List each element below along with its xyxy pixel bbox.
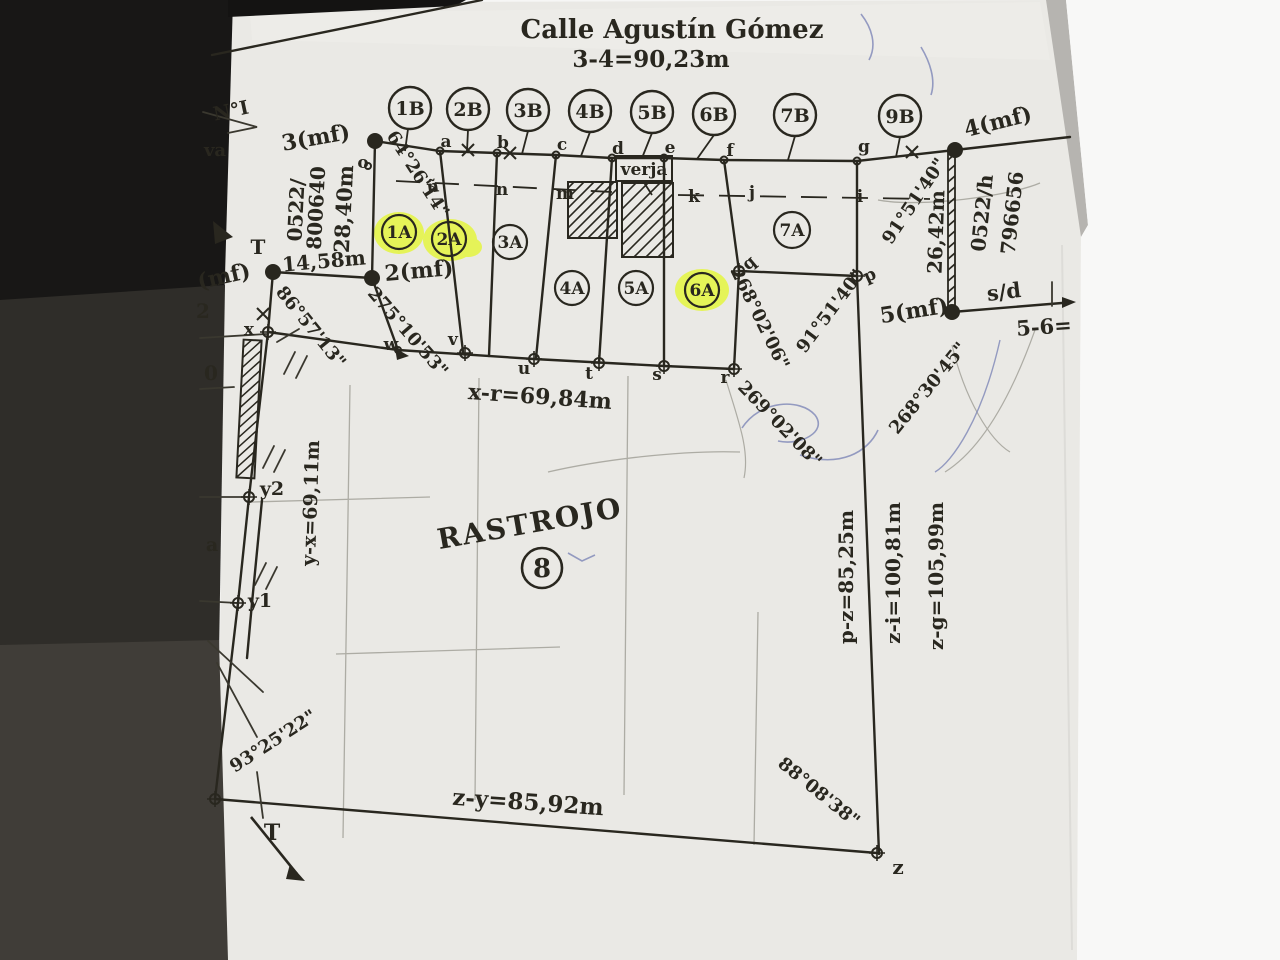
point-n: n bbox=[496, 180, 508, 200]
lot-7A-text: 7A bbox=[779, 221, 805, 241]
label-digit-2: 2 bbox=[196, 299, 210, 323]
point-u: u bbox=[518, 359, 530, 379]
point-s: s bbox=[652, 365, 662, 385]
point-o: o bbox=[357, 153, 368, 173]
lot-4A-text: 4A bbox=[559, 279, 585, 299]
point-w: w bbox=[383, 335, 399, 355]
point-x: x bbox=[244, 320, 255, 340]
point-c: c bbox=[557, 135, 567, 155]
measure-z-i: z-i=100,81m bbox=[881, 502, 905, 644]
point-z: z bbox=[892, 855, 903, 879]
registry-num-left: 800640 bbox=[302, 166, 330, 251]
label-sd: s/d bbox=[985, 277, 1022, 306]
lot-6B-text: 6B bbox=[699, 104, 728, 126]
point-y2: y2 bbox=[259, 478, 284, 500]
point-j: j bbox=[747, 183, 755, 203]
point-i: i bbox=[857, 187, 864, 207]
lot-1A-text: 1A bbox=[386, 223, 412, 243]
label-t-upper: T bbox=[251, 235, 266, 259]
point-d: d bbox=[612, 139, 624, 159]
lot-2B-text: 2B bbox=[453, 99, 482, 121]
point-a: a bbox=[440, 132, 451, 152]
point-k: k bbox=[688, 187, 701, 207]
point-y1: y1 bbox=[247, 590, 272, 612]
parcel-number-text: 8 bbox=[533, 554, 551, 584]
measure-z-g: z-g=105,99m bbox=[924, 502, 948, 650]
street-dimension: 3-4=90,23m bbox=[572, 46, 729, 73]
point-v: v bbox=[447, 330, 459, 350]
lot-9B-text: 9B bbox=[885, 106, 914, 128]
lot-1B-text: 1B bbox=[395, 98, 424, 120]
point-t: t bbox=[585, 364, 593, 384]
lot-5B-text: 5B bbox=[637, 102, 666, 124]
label-va: va bbox=[203, 140, 226, 161]
scanned-cadastral-plan: 1B 2B 3B 4B 5B 6B 7B 9B 1A 2A 3A 4A 5A 6… bbox=[0, 0, 1280, 960]
point-b: b bbox=[497, 133, 509, 153]
point-g: g bbox=[858, 137, 870, 157]
point-m: m bbox=[556, 184, 574, 204]
measure-y-x: y-x=69,11m bbox=[298, 440, 324, 567]
lot-6A-text: 6A bbox=[689, 281, 715, 301]
measure-26-42: 26,42m bbox=[923, 190, 950, 275]
label-letter-a: a bbox=[206, 534, 218, 556]
lot-3B-text: 3B bbox=[513, 100, 542, 122]
lot-2A-text: 2A bbox=[436, 230, 462, 250]
lot-5A-text: 5A bbox=[623, 279, 649, 299]
photo-background bbox=[0, 0, 1280, 960]
label-t-lower: T bbox=[264, 820, 281, 846]
label-5-6: 5-6= bbox=[1015, 312, 1072, 341]
measure-p-z: p-z=85,25m bbox=[834, 510, 858, 644]
verja-text: verja bbox=[620, 160, 668, 180]
lot-4B-text: 4B bbox=[575, 101, 604, 123]
label-digit-0: 0 bbox=[204, 361, 218, 385]
point-e: e bbox=[665, 138, 676, 158]
street-name: Calle Agustín Gómez bbox=[521, 15, 824, 45]
verja-label: verja bbox=[616, 156, 672, 181]
point-r: r bbox=[721, 368, 731, 388]
background-right bbox=[1066, 0, 1280, 960]
lot-7B-text: 7B bbox=[780, 105, 809, 127]
measure-28-40: 28,40m bbox=[329, 164, 359, 253]
lot-3A-text: 3A bbox=[497, 233, 523, 253]
plan-drawing: 1B 2B 3B 4B 5B 6B 7B 9B 1A 2A 3A 4A 5A 6… bbox=[0, 0, 1280, 960]
